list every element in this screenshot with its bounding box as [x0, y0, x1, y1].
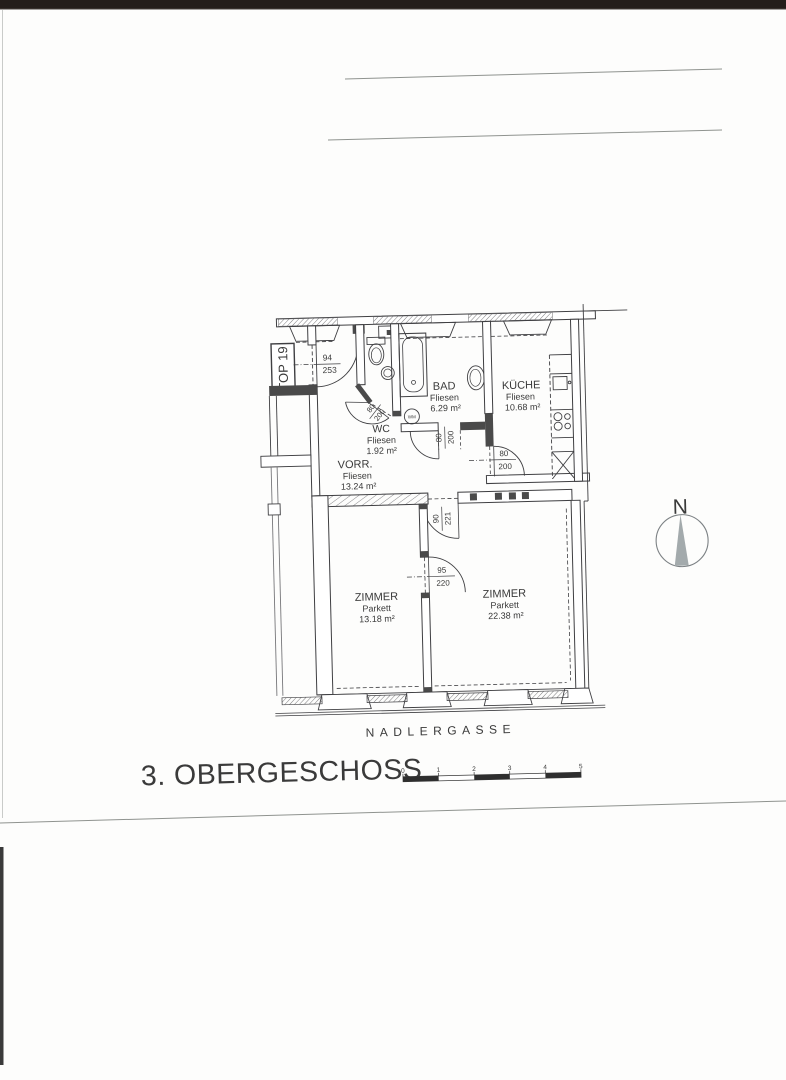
room-zimmer2-floor: Parkett: [490, 600, 519, 611]
room-vorraum-name: VORR.: [338, 458, 373, 471]
room-vorraum-area: 13.24 m²: [341, 481, 377, 492]
north-needle-icon: [673, 514, 688, 565]
window-bottom-3: [447, 693, 488, 701]
page-title: 3. OBERGESCHOSS: [140, 753, 422, 792]
room-kueche-area: 10.68 m²: [505, 402, 541, 413]
plan-sheet: TOP 19 94 253: [129, 301, 714, 792]
scan-artifacts: [0, 0, 786, 1065]
kueche-door-height: 200: [498, 462, 512, 471]
floor-plan-drawing: TOP 19 94 253: [0, 0, 786, 1080]
kitchen-counter: [549, 354, 574, 479]
vent-box-detail: [387, 330, 391, 335]
room-zimmer1-name: ZIMMER: [355, 591, 399, 604]
room-zimmer2: ZIMMER Parkett 22.38 m²: [430, 500, 589, 700]
room-bad-area: 6.29 m²: [430, 403, 461, 414]
window-top-2: [373, 315, 431, 323]
wc-diagonal-wall: [357, 384, 370, 402]
scale-label-4: 4: [543, 764, 547, 771]
room-kueche: 80 200 KÜCHE F: [465, 304, 590, 504]
window-niche-kueche: [503, 320, 551, 335]
kitchen-sink-icon: [553, 376, 567, 389]
zimmer-door-height: 220: [436, 579, 450, 588]
room-wc-name: WC: [372, 423, 390, 435]
scale-label-0: 0: [401, 768, 405, 775]
partition-post-2: [495, 493, 502, 500]
kueche-door-width: 80: [499, 449, 509, 458]
entrance-door-height: 253: [322, 365, 337, 375]
room-vorraum: VORR. Fliesen 13.24 m²: [338, 458, 377, 491]
scale-label-5: 5: [579, 763, 583, 770]
vorraum-zimmer-door-swing: [423, 503, 459, 539]
scale-label-2: 2: [472, 766, 476, 773]
room-kueche-floor: Fliesen: [506, 391, 535, 402]
svg-text:200: 200: [446, 430, 455, 444]
street-name: NADLERGASSE: [365, 722, 516, 740]
window-bottom-4: [528, 691, 568, 699]
room-wc: 80 200 WC Fliesen 1.92 m²: [344, 324, 402, 457]
window-top-1: [278, 318, 337, 326]
room-wc-floor: Fliesen: [367, 435, 396, 446]
wall-pier-2: [403, 692, 451, 708]
scale-bar: 0 1 2 3 4 5: [401, 763, 583, 782]
vorraum-zimmer-door-size: 90 221: [431, 506, 453, 531]
window-bottom-2: [367, 695, 407, 703]
scale-label-3: 3: [508, 765, 512, 772]
washing-machine-label: WM: [408, 414, 416, 419]
svg-text:80: 80: [434, 433, 443, 443]
room-bad-name: BAD: [433, 380, 456, 393]
partition-post-3: [509, 492, 516, 499]
partition-post-4: [522, 492, 529, 499]
neighbour-walls: [259, 395, 317, 696]
north-arrow: N: [655, 495, 709, 567]
toilet-icon: [369, 344, 385, 365]
wall-pier-1: [318, 694, 371, 710]
window-niche-bad: [401, 322, 456, 337]
kueche-door-swing: [494, 446, 525, 477]
scan-ruled-line-2: [328, 130, 722, 140]
scanned-floorplan-page: TOP 19 94 253: [0, 0, 786, 1080]
scan-ruled-line-1: [345, 69, 722, 79]
room-zimmer1: ZIMMER Parkett 13.18 m²: [312, 493, 420, 695]
stove-icon: [554, 413, 562, 421]
separating-wall: 90 221: [312, 489, 573, 542]
room-zimmer2-name: ZIMMER: [483, 588, 527, 601]
zimmer-door-width: 95: [437, 566, 447, 575]
svg-text:221: 221: [443, 511, 452, 525]
room-bad: 80 200 WM BAD Fliesen 6.29 m²: [399, 332, 487, 460]
room-kueche-name: KÜCHE: [502, 379, 541, 392]
room-vorraum-floor: Fliesen: [343, 470, 372, 481]
room-bad-floor: Fliesen: [430, 392, 459, 403]
wall-extension-line: [583, 310, 627, 311]
svg-text:90: 90: [431, 514, 440, 524]
room-zimmer2-area: 22.38 m²: [488, 610, 524, 621]
room-wc-area: 1.92 m²: [366, 445, 397, 456]
neighbour-window: [268, 504, 280, 515]
room-zimmer1-area: 13.18 m²: [359, 613, 395, 624]
scan-page-break-line: [0, 801, 786, 823]
window-bottom-1: [282, 697, 322, 705]
entrance-door-width: 94: [323, 352, 333, 362]
wall-pier-3: [484, 689, 532, 705]
room-zimmer1-floor: Parkett: [362, 603, 391, 614]
partition-post-1: [470, 493, 477, 500]
scan-top-band: [0, 0, 786, 9]
scan-left-dark-bar: [0, 847, 4, 1065]
scale-label-1: 1: [437, 767, 441, 774]
unit-tag-label: TOP 19: [275, 346, 291, 391]
